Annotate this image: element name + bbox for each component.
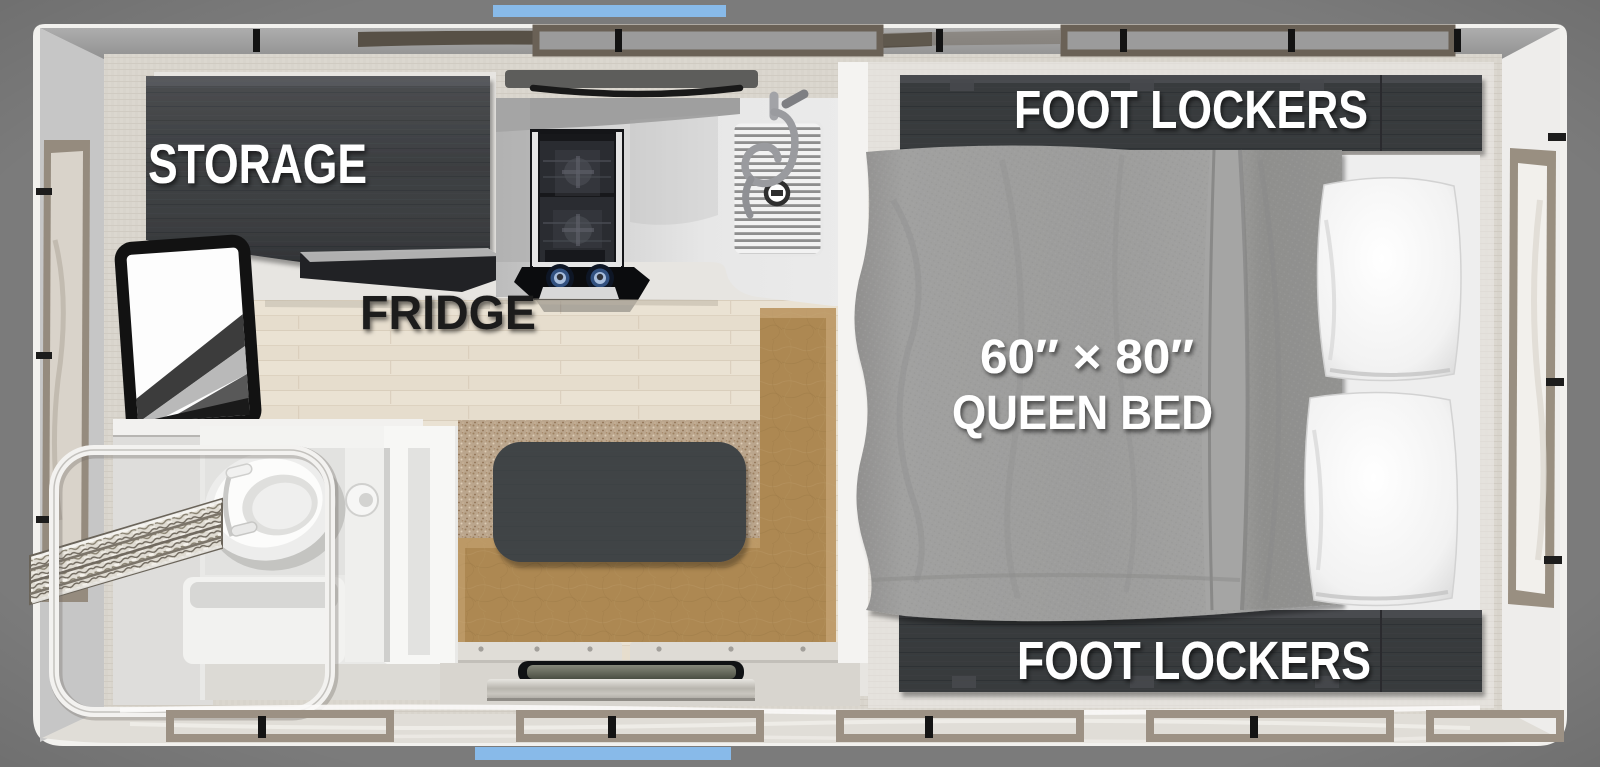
svg-text:FOOT LOCKERS: FOOT LOCKERS: [1017, 631, 1371, 691]
svg-text:60″ × 80″: 60″ × 80″: [980, 331, 1194, 384]
svg-text:FRIDGE: FRIDGE: [360, 287, 536, 340]
svg-text:STORAGE: STORAGE: [148, 132, 367, 195]
svg-text:FOOT LOCKERS: FOOT LOCKERS: [1014, 80, 1368, 140]
svg-text:QUEEN BED: QUEEN BED: [952, 387, 1213, 440]
